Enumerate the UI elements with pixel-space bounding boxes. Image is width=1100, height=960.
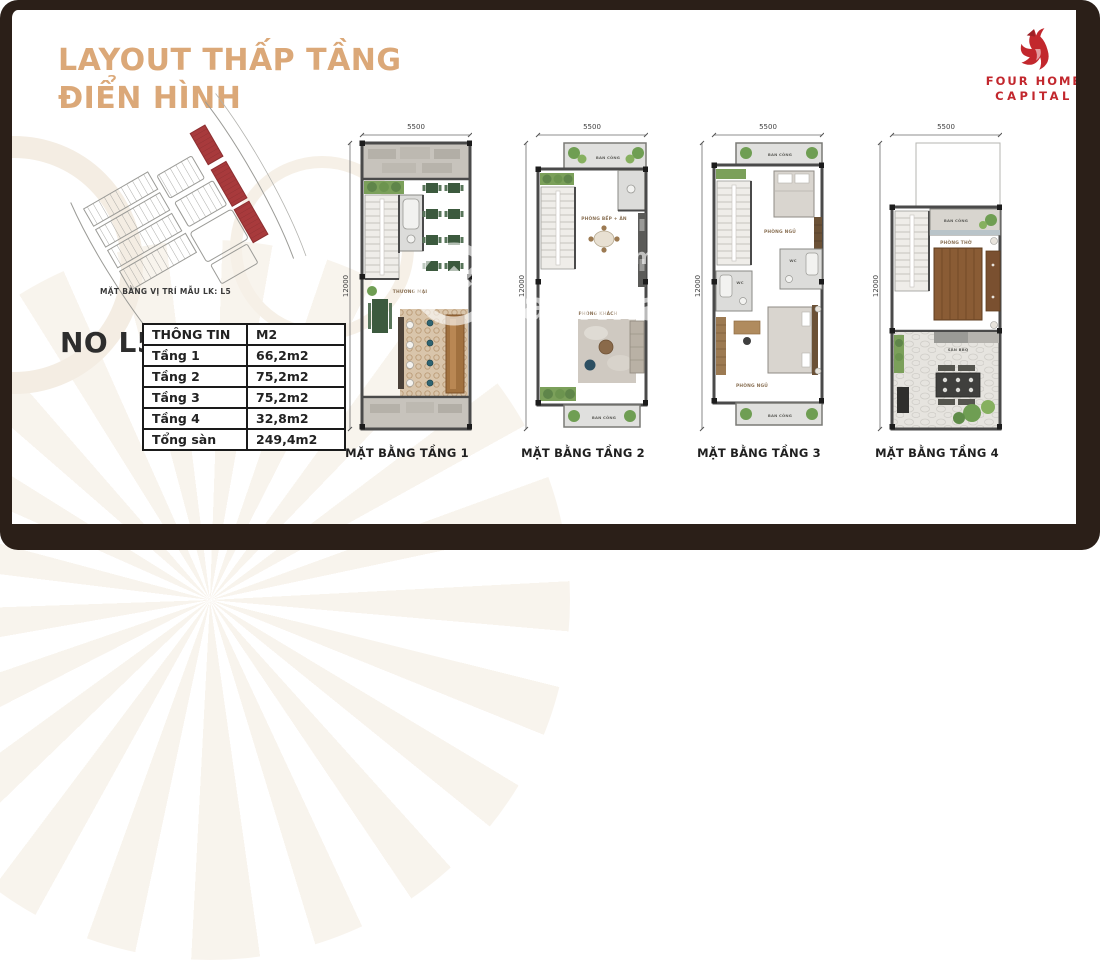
balcony-top: BAN CÔNG <box>736 143 822 165</box>
page-title-line1: LAYOUT THẤP TẦNG <box>58 42 402 80</box>
dimension-width-label: 5500 <box>583 123 601 131</box>
table-header-info: THÔNG TIN <box>143 324 247 345</box>
bench <box>398 317 404 389</box>
floor-plan-3-drawing: 5500 12000 BAN CÔNG PHÒNG NGỦ <box>694 119 824 439</box>
worship-room <box>934 238 1000 329</box>
table-row: Tầng 2 75,2m2 <box>143 366 345 387</box>
room-label-kitchen: PHÒNG BẾP + ĂN <box>581 214 627 222</box>
floor-plan-1: 5500 12000 <box>342 119 472 464</box>
room-label-bedroom-bottom: PHÒNG NGỦ <box>736 381 768 389</box>
bathroom <box>399 195 423 251</box>
dimension-height-label: 12000 <box>872 275 880 297</box>
phoenix-flame-icon <box>1011 26 1057 72</box>
table-row: Tầng 3 75,2m2 <box>143 387 345 408</box>
table-row: Tổng sàn 249,4m2 <box>143 429 345 450</box>
dimension-height-label: 12000 <box>694 275 702 297</box>
room-label-bedroom-top: PHÒNG NGỦ <box>764 227 796 235</box>
bed-bottom <box>768 305 821 375</box>
room-label-living: PHÒNG KHÁCH <box>578 310 617 317</box>
outdoor-dining-table <box>936 365 980 405</box>
planter-box <box>897 387 909 413</box>
wc-left: WC <box>716 271 752 311</box>
room-label-balcony-top: BAN CÔNG <box>768 152 792 157</box>
table-row: Tầng 1 66,2m2 <box>143 345 345 366</box>
site-location-map <box>78 126 318 294</box>
room-label-balcony-bottom: BAN CÔNG <box>768 413 792 418</box>
dimension-width-label: 5500 <box>937 123 955 131</box>
dimension-width-label: 5500 <box>759 123 777 131</box>
living-room <box>578 319 644 383</box>
floor-plan-3: 5500 12000 BAN CÔNG PHÒNG NGỦ <box>694 119 824 464</box>
dimension-height-label: 12000 <box>518 275 526 297</box>
long-table <box>368 299 392 333</box>
highlighted-lots <box>190 125 268 243</box>
planter-hedge-bottom <box>540 387 576 401</box>
table-row: Tầng 4 32,8m2 <box>143 408 345 429</box>
room-label-balcony-top: BAN CÔNG <box>596 155 620 160</box>
floor-plan-2: 5500 12000 BAN CÔNG <box>518 119 648 464</box>
stone-terrace-top <box>362 145 470 180</box>
floor-plan-4: 5500 12000 BAN CÔNG PHÒNG THỜ <box>872 119 1002 464</box>
room-label-balcony-bottom: BAN CÔNG <box>592 415 616 420</box>
planter-hedge <box>540 173 574 185</box>
dimension-height-label: 12000 <box>342 275 350 297</box>
staircase <box>365 195 399 279</box>
row-label: Tổng sàn <box>143 429 247 450</box>
dimension-width-label: 5500 <box>407 123 425 131</box>
row-label: Tầng 1 <box>143 345 247 366</box>
wc-right: WC <box>780 249 822 289</box>
desk <box>734 321 760 345</box>
area-table: THÔNG TIN M2 Tầng 1 66,2m2 Tầng 2 75,2m2… <box>142 323 346 451</box>
staircase <box>717 181 751 265</box>
floor-plan-4-drawing: 5500 12000 BAN CÔNG PHÒNG THỜ <box>872 119 1002 439</box>
dining-set <box>588 225 619 252</box>
room-label-bbq: SÂN BBQ <box>948 347 969 352</box>
planter-hedge <box>716 169 746 179</box>
floor-plan-4-caption: MẶT BẰNG TẦNG 4 <box>857 446 1017 460</box>
row-label: Tầng 4 <box>143 408 247 429</box>
stone-terrace-bottom <box>362 397 470 428</box>
row-label: Tầng 2 <box>143 366 247 387</box>
planter-hedge <box>364 181 404 194</box>
floor-plan-2-drawing: 5500 12000 BAN CÔNG <box>518 119 648 439</box>
table-header-row: THÔNG TIN M2 <box>143 324 345 345</box>
site-map-caption: MẶT BẰNG VỊ TRÍ MẪU LK: L5 <box>100 287 320 296</box>
row-value: 75,2m2 <box>247 387 345 408</box>
room-label-wc-left: WC <box>736 280 743 285</box>
row-value: 75,2m2 <box>247 366 345 387</box>
floor-plan-1-drawing: 5500 12000 <box>342 119 472 439</box>
wardrobe-left <box>716 317 726 375</box>
dining-tables <box>423 183 464 271</box>
row-label: Tầng 3 <box>143 387 247 408</box>
room-label-commercial: THƯƠNG MẠI <box>393 289 428 295</box>
room-label-balcony: BAN CÔNG <box>944 218 968 223</box>
balcony-bottom: BAN CÔNG <box>564 405 640 427</box>
company-logo: FOUR HOME CAPITAL <box>972 26 1096 104</box>
floor-plan-2-caption: MẶT BẰNG TẦNG 2 <box>503 446 663 460</box>
staircase <box>541 187 575 269</box>
bbq-terrace: SÂN BBQ <box>894 332 1000 428</box>
page-title: LAYOUT THẤP TẦNG ĐIỂN HÌNH <box>58 42 402 118</box>
wc <box>618 171 646 211</box>
balcony-top: BAN CÔNG <box>564 143 646 169</box>
open-void <box>916 143 1000 207</box>
room-label-wc-right: WC <box>789 258 796 263</box>
floor-plan-1-caption: MẶT BẰNG TẦNG 1 <box>327 446 487 460</box>
logo-text-line2: CAPITAL <box>972 89 1096 104</box>
floor-plan-3-caption: MẶT BẰNG TẦNG 3 <box>679 446 839 460</box>
logo-text-line1: FOUR HOME <box>972 74 1096 89</box>
staircase <box>895 211 929 291</box>
row-value: 32,8m2 <box>247 408 345 429</box>
table-header-m2: M2 <box>247 324 345 345</box>
balcony: BAN CÔNG <box>930 209 1000 235</box>
room-label-worship: PHÒNG THỜ <box>940 239 972 246</box>
row-value: 66,2m2 <box>247 345 345 366</box>
balcony-bottom: BAN CÔNG <box>736 403 822 425</box>
plant <box>367 286 377 296</box>
